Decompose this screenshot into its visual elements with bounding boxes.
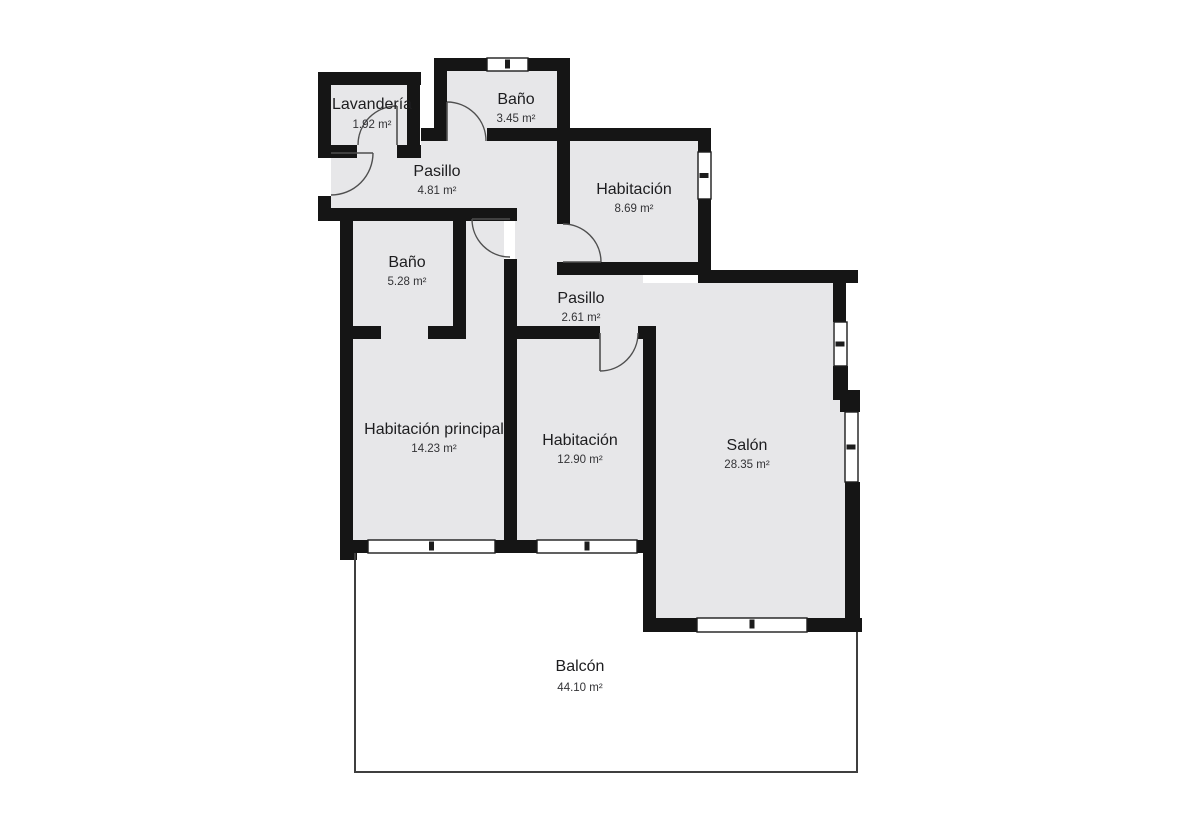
wall [353,326,381,339]
wall [643,326,656,632]
wall [698,128,711,152]
room-label-habitacion-1: Habitación [596,181,672,198]
room-area-pasillo-2: 2.61 m² [562,312,601,324]
room-floor [381,326,428,339]
room-label-salon: Salón [727,437,768,454]
room-area-habitacion-principal: 14.23 m² [411,443,457,455]
window-mullion [700,173,709,178]
wall [318,145,357,158]
window-mullion [847,445,856,450]
room-floor [570,141,698,262]
room-area-habitacion-2: 12.90 m² [557,454,603,466]
room-floor [331,85,407,145]
wall [318,72,331,153]
room-floor [353,221,453,326]
room-area-habitacion-1: 8.69 m² [615,203,654,215]
room-label-bano-2: Baño [388,254,425,271]
room-label-bano-1: Baño [497,91,534,108]
room-floor [643,283,656,326]
wall [840,390,860,412]
room-area-salon: 28.35 m² [724,459,770,471]
floor-plan: Lavandería1.92 m²Baño3.45 m²Pasillo4.81 … [0,0,1200,834]
wall [845,482,860,632]
wall [428,326,466,339]
wall [504,326,517,553]
room-label-habitacion-2: Habitación [542,432,618,449]
wall [421,128,447,141]
room-floor [357,145,397,158]
room-area-bano-2: 5.28 m² [388,276,427,288]
window-mullion [836,342,845,347]
wall [495,540,537,553]
window-mullion [585,542,590,551]
room-area-pasillo-1: 4.81 m² [418,185,457,197]
wall [318,72,421,85]
wall [833,270,846,322]
wall [504,326,600,339]
window-mullion [505,60,510,69]
room-floor [447,128,487,141]
wall [318,196,331,210]
wall [637,540,656,553]
wall [557,128,711,141]
room-label-pasillo-1: Pasillo [413,163,460,180]
wall [340,540,368,553]
room-area-lavanderia: 1.92 m² [353,119,392,131]
room-label-habitacion-principal: Habitación principal [364,421,504,438]
wall [557,262,711,275]
window-mullion [750,620,755,629]
wall [434,58,487,71]
wall [340,208,353,553]
wall [487,128,557,141]
room-label-lavanderia: Lavandería [332,96,412,113]
room-label-balcon: Balcón [556,658,605,675]
room-floor [331,158,421,208]
room-floor [353,339,504,540]
room-floor [466,221,504,339]
window-mullion [429,542,434,551]
wall [453,208,466,333]
room-floor [557,224,570,262]
wall [643,618,697,632]
room-label-pasillo-2: Pasillo [557,290,604,307]
room-area-balcon: 44.10 m² [557,682,603,694]
wall [807,618,862,632]
room-floor [833,400,845,618]
room-area-bano-1: 3.45 m² [497,113,536,125]
wall [397,145,421,158]
floor-plan-page: Lavandería1.92 m²Baño3.45 m²Pasillo4.81 … [0,0,1200,834]
room-floor [600,326,638,339]
